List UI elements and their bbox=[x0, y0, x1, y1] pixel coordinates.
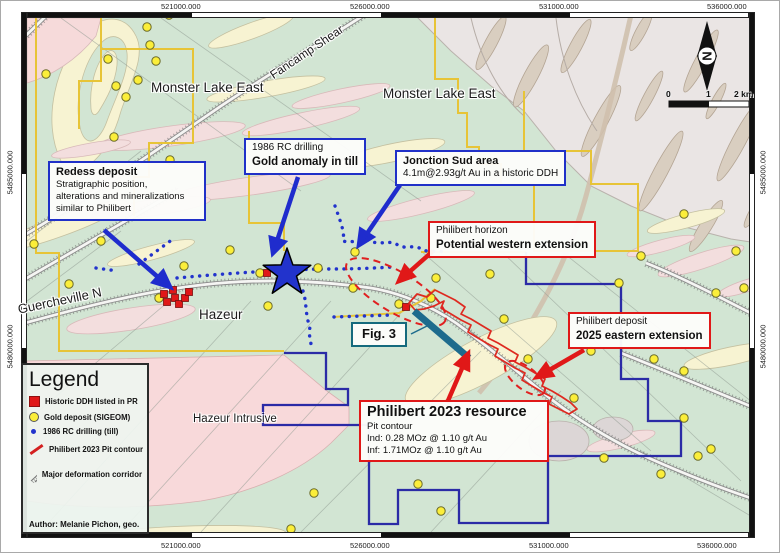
callout-horizon-line-1: Philibert horizon bbox=[436, 225, 588, 238]
grid-label-top-2: 526000.000 bbox=[350, 2, 390, 11]
legend-item-label: Historic DDH listed in PR bbox=[45, 397, 138, 406]
grid-label-top-3: 531000.000 bbox=[539, 2, 579, 11]
legend-panel: Legend Historic DDH listed in PR Gold de… bbox=[21, 363, 149, 534]
scale-bar bbox=[669, 101, 749, 107]
legend-item-label: Major deformation corridor bbox=[42, 470, 142, 479]
fig3-label: Fig. 3 bbox=[362, 326, 396, 341]
legend-item-pit-contour: Philibert 2023 Pit contour bbox=[29, 445, 142, 454]
callout-jonction-title: Jonction Sud area bbox=[403, 154, 558, 168]
callout-philibert-horizon: Philibert horizon Potential western exte… bbox=[428, 221, 596, 258]
blue-dot-icon bbox=[31, 429, 36, 434]
grid-label-bottom-2: 526000.000 bbox=[350, 541, 390, 550]
legend-item-rc-drilling: 1986 RC drilling (till) bbox=[29, 427, 142, 436]
north-arrow-label: N bbox=[700, 51, 715, 60]
scale-tick-0: 0 bbox=[666, 89, 671, 99]
grid-label-bottom-1: 521000.000 bbox=[161, 541, 201, 550]
callout-horizon-line-2: Potential western extension bbox=[436, 238, 588, 253]
callout-deposit-line-2: 2025 eastern extension bbox=[576, 329, 703, 344]
callout-philibert-deposit: Philibert deposit 2025 eastern extension bbox=[568, 312, 711, 349]
callout-resource-line-3: Inf: 1.71MOz @ 1.10 g/t Au bbox=[367, 445, 541, 457]
scale-tick-2: 2 km bbox=[734, 89, 753, 99]
callout-jonction-line: 4.1m@2.93g/t Au in a historic DDH bbox=[403, 168, 558, 181]
callout-1986-line-2: Gold anomaly in till bbox=[252, 155, 358, 170]
callout-1986-rc-drilling: 1986 RC drilling Gold anomaly in till bbox=[244, 138, 366, 175]
geological-map-figure: N 521000.000 526000.000 531000.000 53600… bbox=[0, 0, 780, 553]
legend-item-gold-deposit: Gold deposit (SIGEOM) bbox=[29, 412, 142, 422]
callout-redess-line-2: alterations and mineralizations bbox=[56, 191, 198, 203]
label-monster-lake-east-east: Monster Lake East bbox=[383, 86, 496, 101]
legend-item-historic-ddh: Historic DDH listed in PR bbox=[29, 396, 142, 407]
grid-label-right-2: 5480000.000 bbox=[759, 307, 768, 387]
scale-tick-1: 1 bbox=[706, 89, 711, 99]
grid-label-top-4: 536000.000 bbox=[707, 2, 747, 11]
callout-redess-title: Redess deposit bbox=[56, 165, 198, 179]
legend-item-label: Gold deposit (SIGEOM) bbox=[44, 413, 130, 422]
label-monster-lake-east-west: Monster Lake East bbox=[151, 80, 264, 95]
red-square-icon bbox=[29, 396, 40, 407]
grid-label-top-1: 521000.000 bbox=[161, 2, 201, 11]
callout-1986-line-1: 1986 RC drilling bbox=[252, 142, 358, 155]
grid-label-bottom-3: 531000.000 bbox=[529, 541, 569, 550]
callout-resource-line-1: Pit contour bbox=[367, 421, 541, 433]
legend-item-deformation-corridor: Major deformation corridor bbox=[29, 465, 142, 483]
label-hazeur: Hazeur bbox=[199, 307, 243, 322]
callout-redess-deposit: Redess deposit Stratigraphic position, a… bbox=[48, 161, 206, 221]
legend-title: Legend bbox=[29, 369, 142, 391]
callout-deposit-line-1: Philibert deposit bbox=[576, 316, 703, 329]
yellow-circle-icon bbox=[29, 412, 39, 422]
hatched-band-icon bbox=[29, 465, 37, 483]
callout-philibert-resource: Philibert 2023 resource Pit contour Ind:… bbox=[359, 400, 549, 462]
grid-label-left-2: 5480000.000 bbox=[6, 307, 15, 387]
legend-author: Author: Melanie Pichon, geo. bbox=[29, 520, 142, 529]
fig3-box: Fig. 3 bbox=[351, 322, 407, 347]
callout-resource-title: Philibert 2023 resource bbox=[367, 404, 541, 421]
callout-redess-line-3: similar to Philibert bbox=[56, 203, 198, 215]
callout-redess-line-1: Stratigraphic position, bbox=[56, 179, 198, 191]
red-line-icon bbox=[29, 444, 43, 455]
grid-label-right-1: 5485000.000 bbox=[759, 133, 768, 213]
callout-resource-line-2: Ind: 0.28 MOz @ 1.10 g/t Au bbox=[367, 433, 541, 445]
neatline-top bbox=[27, 12, 749, 18]
legend-item-label: 1986 RC drilling (till) bbox=[43, 427, 118, 436]
callout-jonction-sud: Jonction Sud area 4.1m@2.93g/t Au in a h… bbox=[395, 150, 566, 186]
label-hazeur-intrusive: Hazeur Intrusive bbox=[193, 413, 277, 425]
legend-item-label: Philibert 2023 Pit contour bbox=[49, 445, 143, 454]
grid-label-bottom-4: 536000.000 bbox=[697, 541, 737, 550]
grid-label-left-1: 5485000.000 bbox=[6, 133, 15, 213]
